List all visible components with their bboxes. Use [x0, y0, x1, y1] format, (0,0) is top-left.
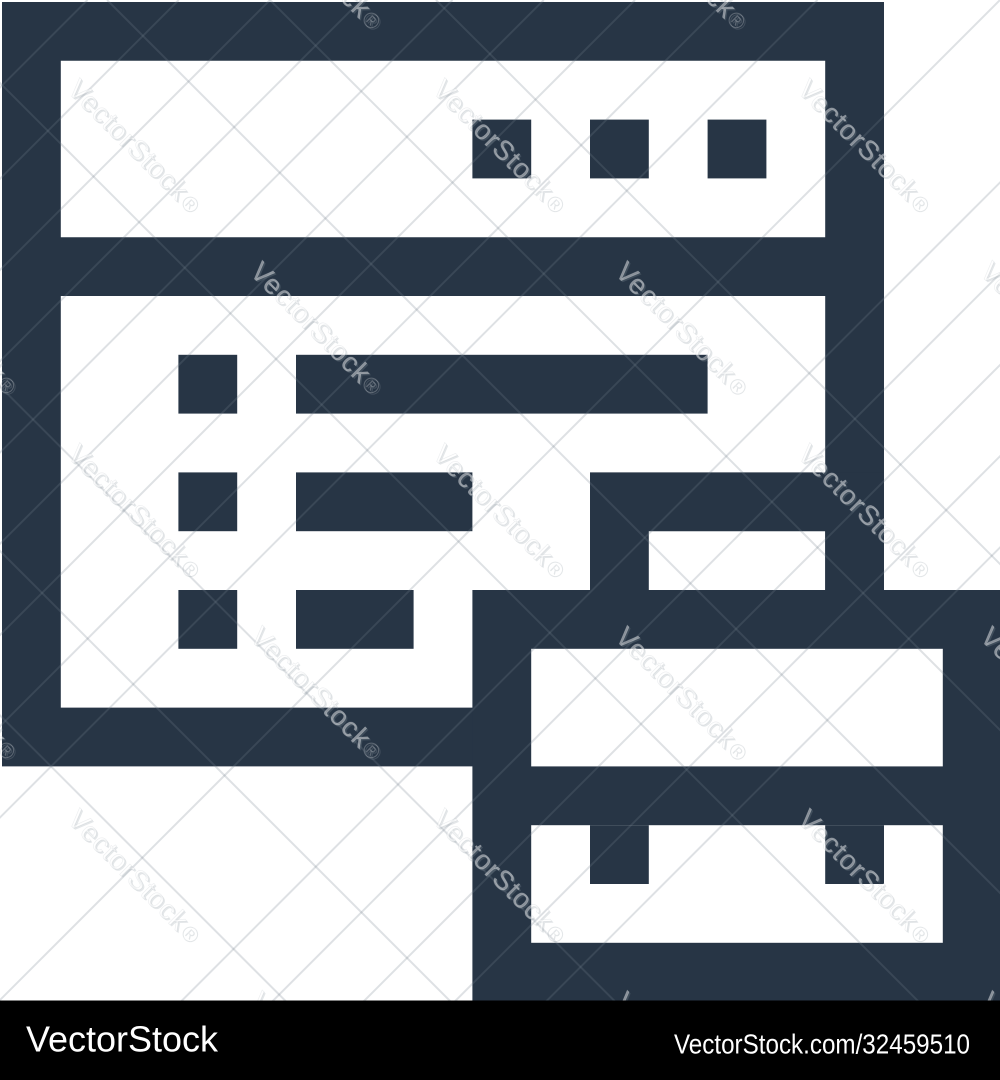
svg-text:VectorStock: VectorStock — [26, 1019, 219, 1060]
svg-text:VectorStock.com/32459510: VectorStock.com/32459510 — [674, 1029, 970, 1060]
